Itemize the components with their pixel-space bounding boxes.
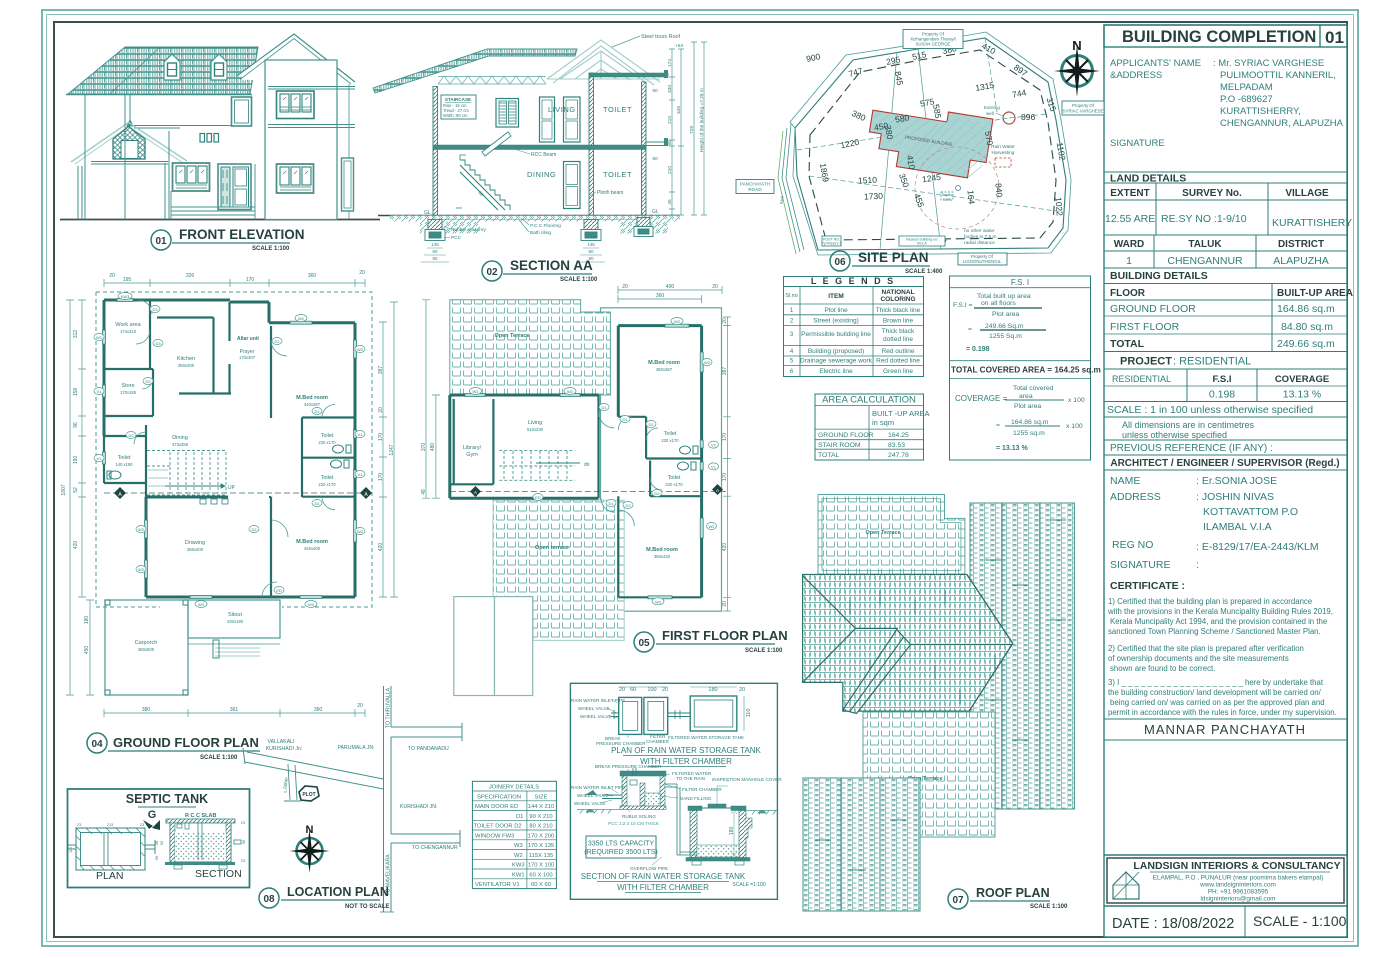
svg-text:Steel truss Roof: Steel truss Roof bbox=[641, 34, 681, 40]
svg-text:KURISHADI JN:: KURISHADI JN: bbox=[400, 804, 437, 810]
svg-text:12.55 ARE: 12.55 ARE bbox=[1105, 213, 1155, 225]
svg-text:ldsigninteriors@gmail.com: ldsigninteriors@gmail.com bbox=[1200, 896, 1275, 903]
svg-text:D2: D2 bbox=[654, 491, 660, 496]
svg-text:(REQUIRED 3500 LTS): (REQUIRED 3500 LTS) bbox=[584, 849, 657, 856]
svg-text:W2: W2 bbox=[96, 335, 103, 340]
svg-text:Work area: Work area bbox=[115, 322, 141, 328]
svg-text:170 X 100: 170 X 100 bbox=[528, 863, 554, 869]
svg-text:312: 312 bbox=[73, 330, 79, 339]
svg-text:CHENGANNUR: CHENGANNUR bbox=[1167, 255, 1243, 267]
svg-text:170x307: 170x307 bbox=[239, 355, 256, 360]
svg-text:COVERAGE =: COVERAGE = bbox=[955, 394, 1008, 403]
svg-text:SYRIAC VARGHESE: SYRIAC VARGHESE bbox=[1063, 109, 1104, 114]
svg-text:366x400: 366x400 bbox=[187, 547, 204, 552]
svg-text:Kerala Muncipality Act 1994, a: Kerala Muncipality Act 1994, and the pro… bbox=[1110, 617, 1327, 626]
svg-text:340x387: 340x387 bbox=[304, 402, 321, 407]
svg-text:no other water: no other water bbox=[964, 228, 995, 234]
svg-text:W2: W2 bbox=[357, 347, 364, 352]
svg-text:SURVEY No.: SURVEY No. bbox=[1182, 188, 1242, 199]
svg-text:170: 170 bbox=[722, 473, 728, 482]
svg-text:SECTION OF RAIN WATER STORAGE: SECTION OF RAIN WATER STORAGE TANK bbox=[581, 872, 746, 881]
svg-text:170 X 135: 170 X 135 bbox=[528, 843, 554, 849]
svg-text:220 x170: 220 x170 bbox=[318, 440, 336, 445]
svg-text:WITH FILTER CHAMBER: WITH FILTER CHAMBER bbox=[617, 883, 709, 892]
svg-text:ROAD: ROAD bbox=[748, 187, 762, 192]
svg-text:CHAMBER: CHAMBER bbox=[646, 739, 670, 744]
svg-text:permit in accordance with the: permit in accordance with the rules in f… bbox=[1108, 708, 1337, 717]
svg-text:FIRST FLOOR: FIRST FLOOR bbox=[1110, 321, 1180, 333]
svg-text:20: 20 bbox=[109, 273, 115, 279]
svg-text:145: 145 bbox=[431, 242, 439, 247]
svg-text:Living: Living bbox=[528, 420, 542, 426]
svg-text:Electric line: Electric line bbox=[819, 368, 853, 375]
svg-text:W3: W3 bbox=[655, 599, 662, 604]
svg-text:60: 60 bbox=[432, 249, 438, 254]
svg-text:BUILT -UP AREA: BUILT -UP AREA bbox=[872, 409, 930, 418]
svg-text:20: 20 bbox=[378, 407, 384, 413]
svg-text:W2: W2 bbox=[357, 529, 364, 534]
svg-text:115X 135: 115X 135 bbox=[529, 853, 553, 859]
svg-text:STAIRCASE: STAIRCASE bbox=[445, 97, 471, 102]
svg-text:Red dotted line: Red dotted line bbox=[876, 358, 920, 365]
svg-text:01: 01 bbox=[1325, 28, 1344, 47]
svg-text:x 100: x 100 bbox=[1068, 397, 1085, 404]
svg-text:SIZE: SIZE bbox=[535, 794, 548, 800]
svg-text:480: 480 bbox=[430, 443, 436, 452]
svg-text:SCALE 1:100: SCALE 1:100 bbox=[252, 246, 290, 252]
svg-text:Rubble masonry: Rubble masonry bbox=[451, 227, 487, 233]
svg-text:20: 20 bbox=[722, 318, 728, 324]
svg-text:COLORING: COLORING bbox=[880, 296, 915, 303]
svg-text:SIGNATURE: SIGNATURE bbox=[1110, 138, 1165, 149]
svg-text:1510: 1510 bbox=[858, 175, 878, 186]
svg-text:Open terrace: Open terrace bbox=[535, 545, 569, 551]
svg-text:M.Bed room: M.Bed room bbox=[646, 547, 678, 553]
svg-text:V1: V1 bbox=[358, 432, 364, 437]
svg-text:the building construction/ la: the building construction/ land developm… bbox=[1108, 688, 1322, 697]
svg-text:210: 210 bbox=[667, 116, 673, 124]
svg-text:R C C SLAB: R C C SLAB bbox=[185, 813, 217, 819]
svg-text:SECTION: SECTION bbox=[195, 868, 242, 880]
svg-text:TO THIRUVALLA: TO THIRUVALLA bbox=[386, 687, 392, 728]
svg-text:SCALE 1:100: SCALE 1:100 bbox=[560, 277, 598, 283]
svg-text:PROJECT: PROJECT bbox=[1120, 356, 1172, 368]
svg-text:WARD: WARD bbox=[1114, 239, 1145, 250]
svg-text:D3: D3 bbox=[152, 307, 158, 312]
svg-text:48: 48 bbox=[421, 489, 427, 495]
svg-text:WHEEL VALVE: WHEEL VALVE bbox=[580, 714, 612, 719]
svg-text:DATE : 18/08/2022: DATE : 18/08/2022 bbox=[1112, 916, 1234, 932]
svg-text:being carried on/ was carried: being carried on/ was carried on as per … bbox=[1110, 698, 1325, 707]
svg-text:of ownership documents and the: of ownership documents and the site meas… bbox=[1108, 654, 1289, 663]
svg-text:Drawing: Drawing bbox=[185, 540, 205, 546]
svg-text:BUILT-UP AREA: BUILT-UP AREA bbox=[1277, 288, 1353, 299]
svg-text:195: 195 bbox=[123, 277, 132, 283]
svg-text:60: 60 bbox=[652, 156, 658, 162]
svg-text:84.80 sq.m: 84.80 sq.m bbox=[1281, 321, 1333, 333]
svg-text:DINING: DINING bbox=[527, 170, 556, 179]
svg-text:170: 170 bbox=[378, 473, 384, 482]
svg-text:TOILET: TOILET bbox=[603, 170, 632, 179]
svg-text:W2: W2 bbox=[567, 389, 574, 394]
svg-text:170 X 200: 170 X 200 bbox=[528, 833, 554, 839]
svg-text:PULIMOOTTIL KANNERIL,: PULIMOOTTIL KANNERIL, bbox=[1220, 70, 1336, 81]
svg-text:NOT TO SCALE: NOT TO SCALE bbox=[345, 904, 390, 910]
svg-text:170: 170 bbox=[378, 433, 384, 442]
svg-text:V1: V1 bbox=[97, 456, 103, 461]
svg-text:D2: D2 bbox=[648, 422, 654, 427]
svg-text:430x190: 430x190 bbox=[227, 619, 244, 624]
svg-text:D1: D1 bbox=[516, 814, 523, 820]
svg-text:20: 20 bbox=[622, 284, 628, 290]
svg-text:145: 145 bbox=[587, 242, 595, 247]
svg-text:Brown line: Brown line bbox=[883, 318, 914, 325]
svg-text:164.25: 164.25 bbox=[888, 432, 909, 439]
svg-text:W2: W2 bbox=[138, 567, 145, 572]
svg-text:JOINERY DETAILS: JOINERY DETAILS bbox=[489, 785, 539, 791]
svg-text:140 x190: 140 x190 bbox=[115, 462, 133, 467]
svg-text:STAIR ROOM: STAIR ROOM bbox=[818, 442, 861, 449]
svg-text:Open Terrace: Open Terrace bbox=[865, 530, 900, 536]
svg-text:TO CHENGANNUR: TO CHENGANNUR bbox=[412, 845, 458, 851]
svg-text:60: 60 bbox=[652, 88, 658, 94]
svg-text:PCC 1:2:4 10 CM THICK: PCC 1:2:4 10 CM THICK bbox=[608, 821, 660, 826]
svg-text:tank: tank bbox=[943, 198, 950, 202]
svg-text:D3: D3 bbox=[155, 341, 161, 346]
svg-text:ELAMPAL, P.O , PUNALUR (near p: ELAMPAL, P.O , PUNALUR (near poomima bak… bbox=[1153, 875, 1324, 882]
svg-text:80: 80 bbox=[432, 256, 438, 261]
svg-text:SITE PLAN: SITE PLAN bbox=[858, 250, 929, 265]
svg-text:100: 100 bbox=[647, 687, 656, 693]
svg-text:on all floors: on all floors bbox=[981, 300, 1016, 307]
svg-text:V1: V1 bbox=[711, 443, 717, 448]
svg-text:Store: Store bbox=[121, 383, 134, 389]
svg-text:Drainage sewerage work: Drainage sewerage work bbox=[800, 358, 873, 365]
svg-text:GL: GL bbox=[424, 210, 431, 216]
svg-text:PANCHAYATH: PANCHAYATH bbox=[740, 182, 770, 187]
svg-text:GROUND FLOOR: GROUND FLOOR bbox=[818, 432, 874, 439]
svg-text:0.198: 0.198 bbox=[1209, 389, 1235, 401]
svg-text:SCALE 1:100: SCALE 1:100 bbox=[1030, 904, 1068, 910]
svg-text:164: 164 bbox=[965, 190, 976, 205]
svg-text:ED: ED bbox=[535, 495, 541, 500]
svg-text:420: 420 bbox=[378, 543, 384, 552]
svg-text:WHEEL VALVE: WHEEL VALVE bbox=[578, 706, 610, 711]
svg-text:COVERAGE: COVERAGE bbox=[1275, 374, 1329, 385]
svg-text:N: N bbox=[306, 824, 314, 836]
svg-text:164.86 sq.m: 164.86 sq.m bbox=[1011, 419, 1049, 426]
svg-text:60: 60 bbox=[630, 687, 636, 693]
svg-text:RAIN WATER INLET PIPE: RAIN WATER INLET PIPE bbox=[571, 698, 625, 703]
svg-text:190: 190 bbox=[73, 456, 79, 465]
svg-text:W3: W3 bbox=[198, 602, 205, 607]
svg-text:170: 170 bbox=[246, 277, 255, 283]
svg-text:Altar unit: Altar unit bbox=[237, 336, 259, 342]
svg-text:180: 180 bbox=[708, 687, 717, 693]
svg-text:Height of the building =7.29 m: Height of the building =7.29 m bbox=[699, 88, 705, 152]
svg-text:KOTTAVATTOM P.O: KOTTAVATTOM P.O bbox=[1203, 506, 1298, 518]
svg-text:180: 180 bbox=[84, 616, 90, 625]
svg-text:TOTAL COVERED AREA = 164.25 s: TOTAL COVERED AREA = 164.25 sq.m bbox=[951, 366, 1101, 375]
svg-text:345: 345 bbox=[676, 106, 682, 114]
svg-text:840: 840 bbox=[993, 183, 1004, 198]
svg-text:20: 20 bbox=[359, 270, 365, 276]
svg-text:144 X 210: 144 X 210 bbox=[528, 804, 554, 810]
svg-text:W2: W2 bbox=[709, 524, 716, 529]
svg-text:Permissible building line: Permissible building line bbox=[801, 331, 871, 338]
svg-text:x 100: x 100 bbox=[1066, 423, 1083, 430]
svg-text:04: 04 bbox=[91, 739, 103, 750]
svg-text:M.Bed room: M.Bed room bbox=[648, 360, 680, 366]
svg-text:Red outline: Red outline bbox=[882, 348, 915, 355]
svg-text:WHEEL VALVE: WHEEL VALVE bbox=[574, 801, 606, 806]
svg-text:TO PANDANADU: TO PANDANADU bbox=[408, 746, 449, 752]
svg-text:1) Certified that the building: 1) Certified that the building plan is p… bbox=[1108, 597, 1312, 606]
svg-text:PH: +91 9961083595: PH: +91 9961083595 bbox=[1208, 889, 1269, 896]
svg-text:373x356: 373x356 bbox=[172, 442, 189, 447]
svg-text:729: 729 bbox=[689, 126, 695, 134]
svg-text:D1: D1 bbox=[314, 501, 320, 506]
svg-text:Building (proposed): Building (proposed) bbox=[808, 348, 864, 355]
svg-text:Toilet: Toilet bbox=[664, 431, 677, 437]
svg-text:bodies in 7.5 m: bodies in 7.5 m bbox=[964, 234, 997, 240]
svg-text:23: 23 bbox=[241, 821, 245, 825]
svg-text:Kitchen: Kitchen bbox=[177, 356, 195, 362]
svg-text:510x230: 510x230 bbox=[527, 427, 544, 432]
svg-text:20: 20 bbox=[662, 687, 668, 693]
svg-text:220 x170: 220 x170 bbox=[665, 482, 683, 487]
svg-text:345x400: 345x400 bbox=[304, 546, 321, 551]
svg-text:FILTERED WATER STORAGE TANK: FILTERED WATER STORAGE TANK bbox=[668, 735, 745, 740]
svg-text:Thick black: Thick black bbox=[882, 328, 915, 335]
svg-text:SCALE =1:100: SCALE =1:100 bbox=[732, 882, 765, 888]
svg-text:247.78: 247.78 bbox=[888, 452, 909, 459]
svg-text:20: 20 bbox=[739, 687, 745, 693]
svg-text:210: 210 bbox=[667, 166, 673, 174]
svg-text:SUSAN GEORGE: SUSAN GEORGE bbox=[916, 42, 951, 47]
svg-text:174: 174 bbox=[667, 59, 673, 67]
svg-text:area: area bbox=[1019, 393, 1033, 400]
svg-text:: JOSHIN NIVAS: : JOSHIN NIVAS bbox=[1196, 491, 1274, 503]
svg-text:370: 370 bbox=[421, 443, 427, 452]
svg-text:1807: 1807 bbox=[61, 484, 67, 495]
svg-text:D2: D2 bbox=[251, 527, 257, 532]
svg-text:80 X 210: 80 X 210 bbox=[529, 824, 552, 830]
svg-text:V1: V1 bbox=[358, 472, 364, 477]
svg-text:SCALE : 1 in 100 unless otherw: SCALE : 1 in 100 unless otherwise specif… bbox=[1107, 404, 1313, 416]
svg-text:20: 20 bbox=[712, 284, 718, 290]
svg-text:D1: D1 bbox=[601, 405, 607, 410]
svg-text:Property Of: Property Of bbox=[1072, 103, 1095, 108]
svg-text:KURATTISHERY: KURATTISHERY bbox=[1272, 217, 1352, 229]
svg-text:MANNAR PANCHAYATH: MANNAR PANCHAYATH bbox=[1144, 722, 1306, 737]
svg-text:+54: +54 bbox=[675, 43, 683, 49]
svg-text:220 x170: 220 x170 bbox=[661, 438, 679, 443]
svg-text:NATIONAL: NATIONAL bbox=[881, 289, 914, 296]
svg-text:TO THE RAIN: TO THE RAIN bbox=[676, 776, 705, 781]
svg-text:249.66 sq.m: 249.66 sq.m bbox=[1277, 338, 1335, 350]
svg-text:&ADDRESS: &ADDRESS bbox=[1110, 70, 1162, 81]
svg-text:02: 02 bbox=[486, 267, 498, 278]
svg-text:TOTAL: TOTAL bbox=[818, 452, 839, 459]
svg-text:1247: 1247 bbox=[389, 444, 395, 455]
svg-text:MAIN DOOR ED: MAIN DOOR ED bbox=[475, 804, 518, 810]
svg-text:V1: V1 bbox=[97, 389, 103, 394]
svg-text:: Er.SONIA JOSE: : Er.SONIA JOSE bbox=[1196, 475, 1277, 487]
svg-text:N: N bbox=[1072, 38, 1081, 53]
svg-text:326: 326 bbox=[186, 273, 195, 279]
svg-text:20: 20 bbox=[357, 703, 363, 709]
svg-text:www.landsigninteriors.com: www.landsigninteriors.com bbox=[1199, 882, 1276, 889]
svg-text:95: 95 bbox=[242, 840, 246, 844]
svg-text:= 13.13 %: = 13.13 % bbox=[996, 445, 1028, 452]
svg-text:ADDRESS: ADDRESS bbox=[1110, 491, 1161, 503]
svg-text:1022: 1022 bbox=[1053, 197, 1065, 217]
svg-text:1255 sq.m: 1255 sq.m bbox=[1013, 430, 1045, 437]
svg-text:VENTILATOR V1: VENTILATOR V1 bbox=[475, 882, 520, 888]
svg-text:Carporch: Carporch bbox=[135, 640, 158, 646]
svg-text:Toilet: Toilet bbox=[118, 455, 131, 461]
svg-text:Plot line: Plot line bbox=[824, 307, 848, 314]
svg-text:D2: D2 bbox=[128, 433, 134, 438]
svg-text:001-A: 001-A bbox=[917, 242, 927, 246]
svg-text:WINDOW FW3: WINDOW FW3 bbox=[475, 833, 514, 839]
svg-text:=: = bbox=[968, 326, 972, 333]
svg-text:Py/VII(a)/1-5: Py/VII(a)/1-5 bbox=[821, 242, 841, 246]
svg-text:KW1: KW1 bbox=[512, 872, 525, 878]
svg-text:GL: GL bbox=[652, 209, 659, 215]
svg-text:07: 07 bbox=[952, 895, 964, 906]
svg-text:08: 08 bbox=[263, 894, 275, 905]
svg-text:01: 01 bbox=[155, 236, 167, 247]
svg-text:Bath tiling: Bath tiling bbox=[530, 230, 551, 236]
svg-text:TOILET: TOILET bbox=[603, 105, 632, 114]
svg-text:Plot area: Plot area bbox=[1014, 403, 1041, 410]
svg-text:D1: D1 bbox=[622, 417, 628, 422]
svg-text:RESIDENTIAL: RESIDENTIAL bbox=[1112, 374, 1171, 384]
svg-text:A: A bbox=[474, 490, 477, 495]
svg-text:Rain Water: Rain Water bbox=[991, 144, 1015, 150]
svg-text:TOTAL: TOTAL bbox=[1110, 338, 1145, 350]
svg-text:380: 380 bbox=[142, 707, 151, 713]
svg-text:LAND DETAILS: LAND DETAILS bbox=[1110, 173, 1186, 185]
svg-text:Harvesting: Harvesting bbox=[992, 150, 1015, 156]
svg-text:Total covered: Total covered bbox=[1013, 385, 1054, 392]
svg-text:Green line: Green line bbox=[883, 368, 913, 375]
svg-text:TALUK: TALUK bbox=[1188, 239, 1222, 250]
svg-text:60 X 100: 60 X 100 bbox=[529, 872, 552, 878]
svg-text:360: 360 bbox=[656, 293, 665, 299]
svg-text:RCC Beam: RCC Beam bbox=[531, 152, 556, 158]
svg-text:D1: D1 bbox=[314, 409, 320, 414]
svg-text:360x387: 360x387 bbox=[656, 367, 673, 372]
svg-text:W2: W2 bbox=[298, 316, 305, 321]
svg-text:W2: W2 bbox=[674, 319, 681, 324]
svg-text:LANDSIGN INTERIORS & CONSULTAN: LANDSIGN INTERIORS & CONSULTANCY bbox=[1133, 860, 1340, 872]
svg-text:SCALE 1:400: SCALE 1:400 bbox=[905, 269, 943, 275]
svg-text:LIVING: LIVING bbox=[548, 105, 576, 114]
svg-text:Plot area: Plot area bbox=[992, 311, 1019, 318]
svg-text:KURATTISHERRY,: KURATTISHERRY, bbox=[1220, 106, 1301, 117]
svg-text:D1: D1 bbox=[274, 339, 280, 344]
svg-text:PCC: PCC bbox=[451, 235, 462, 241]
svg-text:UP: UP bbox=[228, 485, 236, 491]
svg-text:PLAN OF RAIN WATER STORAGE TAN: PLAN OF RAIN WATER STORAGE TANK bbox=[611, 746, 761, 755]
svg-text:20: 20 bbox=[619, 687, 625, 693]
svg-text:45: 45 bbox=[667, 199, 673, 205]
svg-text:SPECIFICATION: SPECIFICATION bbox=[477, 794, 521, 800]
svg-text:1: 1 bbox=[1126, 255, 1132, 267]
svg-text:=: = bbox=[996, 422, 1000, 429]
svg-text:W2: W2 bbox=[473, 389, 480, 394]
svg-text:OVERFLOW PIPE: OVERFLOW PIPE bbox=[630, 866, 668, 871]
svg-text:420: 420 bbox=[73, 541, 79, 550]
svg-text:M.Bed room: M.Bed room bbox=[296, 539, 328, 545]
svg-text:ITEM: ITEM bbox=[828, 293, 844, 300]
svg-text:350x400: 350x400 bbox=[178, 363, 195, 368]
svg-text:Septic: Septic bbox=[942, 193, 953, 197]
svg-text:MELPADAM: MELPADAM bbox=[1220, 82, 1273, 93]
svg-text:D1: D1 bbox=[608, 501, 614, 506]
svg-text:50: 50 bbox=[160, 841, 164, 845]
svg-text:450: 450 bbox=[84, 646, 90, 655]
svg-text:SEPTIC TANK: SEPTIC TANK bbox=[126, 792, 208, 806]
svg-text:23: 23 bbox=[140, 823, 144, 827]
svg-text:in sqm: in sqm bbox=[872, 418, 894, 427]
svg-text:radial distance: radial distance bbox=[964, 240, 995, 246]
svg-text:FLOOR: FLOOR bbox=[1110, 288, 1146, 299]
svg-text:360x420: 360x420 bbox=[654, 554, 671, 559]
svg-text:AREA CALCULATION: AREA CALCULATION bbox=[822, 395, 916, 406]
svg-text:ED: ED bbox=[276, 588, 282, 593]
svg-text:95: 95 bbox=[155, 856, 159, 860]
svg-text:V1: V1 bbox=[711, 464, 717, 469]
svg-text:M.Bed room: M.Bed room bbox=[296, 395, 328, 401]
svg-text:VALLAKALI: VALLAKALI bbox=[267, 739, 294, 745]
svg-text:PLAN: PLAN bbox=[96, 870, 123, 882]
svg-text:W2: W2 bbox=[138, 527, 145, 532]
svg-text:Library/: Library/ bbox=[463, 445, 482, 451]
svg-text:Sl.no: Sl.no bbox=[785, 293, 798, 299]
svg-text:Dining: Dining bbox=[172, 435, 188, 441]
svg-text:Toilet: Toilet bbox=[321, 433, 334, 439]
svg-text:TOILET DOOR D2: TOILET DOOR D2 bbox=[474, 824, 522, 830]
svg-text:VILLAGE: VILLAGE bbox=[1285, 188, 1329, 199]
svg-text:360x600: 360x600 bbox=[138, 647, 155, 652]
svg-text:174x310: 174x310 bbox=[120, 329, 137, 334]
svg-text:896: 896 bbox=[1021, 112, 1035, 122]
svg-text:60 X 60: 60 X 60 bbox=[531, 882, 551, 888]
svg-text:PARUMALA JN:: PARUMALA JN: bbox=[337, 745, 374, 751]
svg-text:REG NO: REG NO bbox=[1112, 539, 1153, 551]
svg-text:unless otherwise specified: unless otherwise specified bbox=[1122, 430, 1227, 440]
svg-text:: E-8129/17/EA-2443/KLM: : E-8129/17/EA-2443/KLM bbox=[1196, 541, 1319, 553]
svg-text:170x185: 170x185 bbox=[120, 390, 137, 395]
svg-text:387: 387 bbox=[378, 366, 384, 375]
svg-text:110: 110 bbox=[746, 709, 752, 718]
svg-text:Plinth beam: Plinth beam bbox=[597, 190, 623, 196]
svg-text:Total built up area: Total built up area bbox=[977, 293, 1031, 300]
svg-text:KW3: KW3 bbox=[121, 294, 130, 299]
svg-text:28: 28 bbox=[155, 841, 159, 845]
svg-text:with the provisions in the Ker: with the provisions in the Kerala Muncip… bbox=[1107, 607, 1333, 616]
svg-text:20: 20 bbox=[722, 601, 728, 607]
svg-text:3) I _ _ _ _ _ _ _ _ _ _ _ _ _: 3) I _ _ _ _ _ _ _ _ _ _ _ _ _ _ _ _ _ _… bbox=[1108, 678, 1324, 687]
svg-text:A: A bbox=[716, 488, 719, 493]
svg-text:RAIN WATER INLET PIPE: RAIN WATER INLET PIPE bbox=[571, 785, 625, 790]
svg-text:shown are found to be correct.: shown are found to be correct. bbox=[1110, 664, 1215, 673]
svg-text:SCALE 1:100: SCALE 1:100 bbox=[200, 755, 238, 761]
